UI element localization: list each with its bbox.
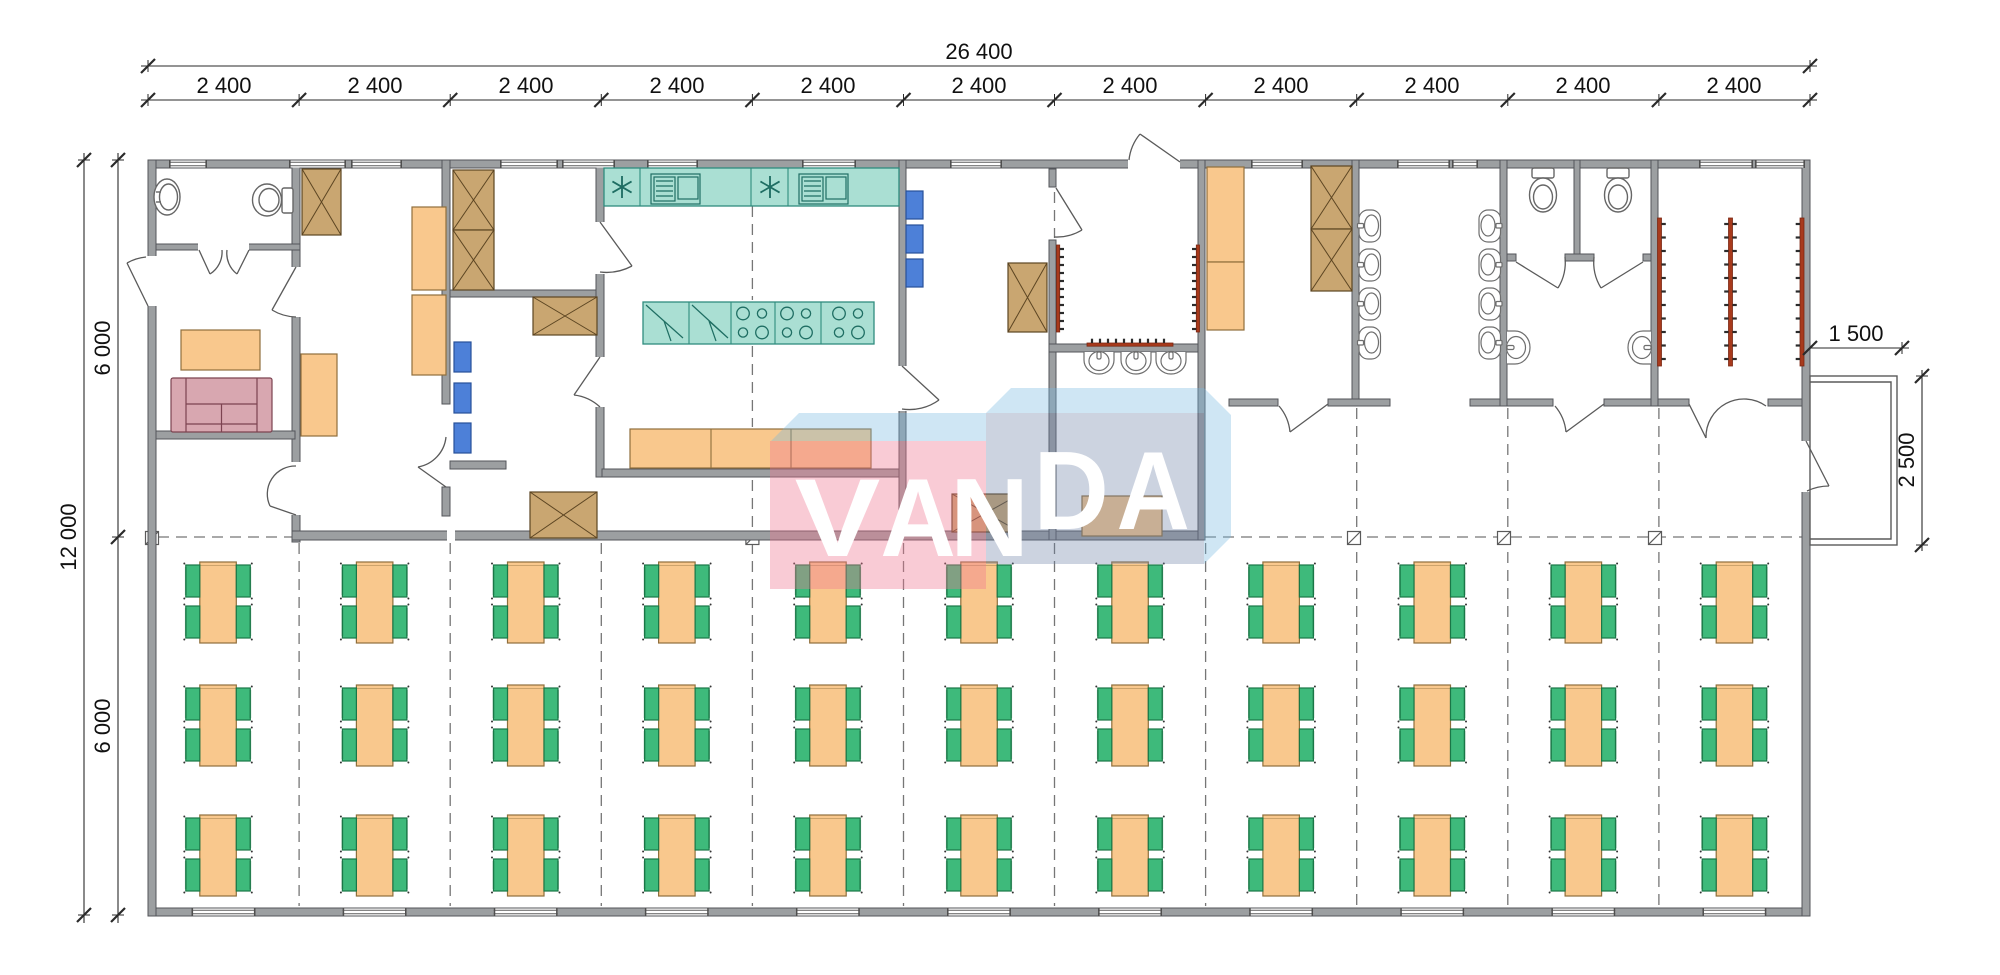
svg-text:2 400: 2 400 [498, 73, 553, 98]
svg-text:A: A [1117, 429, 1190, 553]
svg-text:2 400: 2 400 [951, 73, 1006, 98]
svg-text:6 000: 6 000 [90, 698, 115, 753]
svg-text:2 400: 2 400 [649, 73, 704, 98]
svg-text:12 000: 12 000 [56, 503, 81, 570]
svg-text:2 400: 2 400 [1253, 73, 1308, 98]
svg-text:2 400: 2 400 [1102, 73, 1157, 98]
svg-text:N: N [950, 456, 1029, 580]
svg-text:D: D [1033, 428, 1108, 553]
svg-text:1 500: 1 500 [1828, 321, 1883, 346]
svg-text:2 400: 2 400 [347, 73, 402, 98]
svg-text:V: V [795, 456, 881, 580]
svg-text:2 400: 2 400 [1404, 73, 1459, 98]
svg-text:A: A [880, 455, 956, 579]
svg-text:2 400: 2 400 [1706, 73, 1761, 98]
svg-text:2 400: 2 400 [196, 73, 251, 98]
svg-text:2 400: 2 400 [800, 73, 855, 98]
svg-text:2 500: 2 500 [1894, 432, 1919, 487]
svg-text:26 400: 26 400 [945, 39, 1012, 64]
svg-text:6 000: 6 000 [90, 320, 115, 375]
svg-text:2 400: 2 400 [1555, 73, 1610, 98]
